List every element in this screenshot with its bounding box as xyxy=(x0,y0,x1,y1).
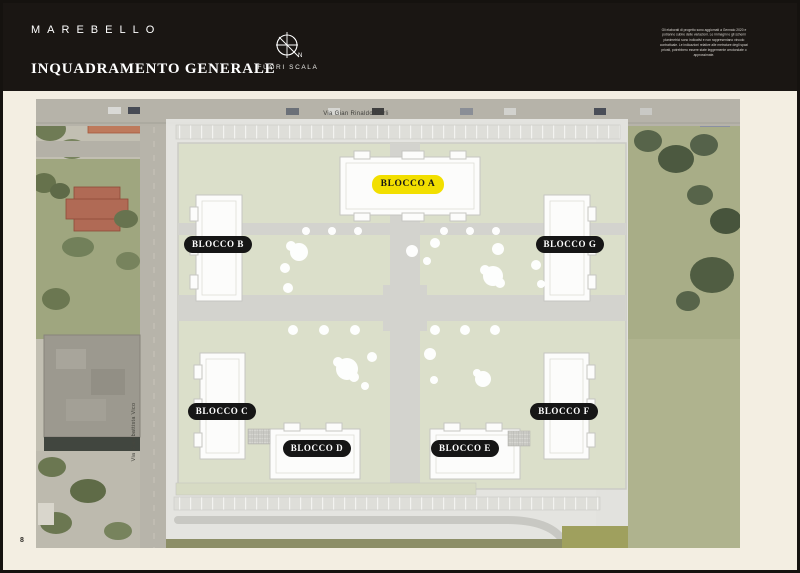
disclaimer-text: Gli elaborati di progetto sono aggiornat… xyxy=(655,28,753,59)
parking-strip-top xyxy=(176,125,620,139)
disclaimer-block: Gli elaborati di progetto sono aggiornat… xyxy=(655,28,753,84)
service-box-e xyxy=(508,431,530,446)
page-number: 8 xyxy=(20,537,24,544)
compass-block: N FUORI SCALA xyxy=(255,31,321,71)
block-label-e: BLOCCO E xyxy=(431,440,499,457)
street-label-via-gian-rinaldo-carli: Via Gian Rinaldo Carli xyxy=(286,111,426,117)
street-label-via-giambattista-vico: Via Giambattista Vico xyxy=(131,403,137,462)
block-label-f: BLOCCO F xyxy=(530,403,598,420)
block-label-b: BLOCCO B xyxy=(184,236,252,253)
compass-north-label: N xyxy=(298,53,302,59)
block-label-c: BLOCCO C xyxy=(188,403,256,420)
brand-logo: MAREBELLO xyxy=(31,24,161,36)
scale-note: FUORI SCALA xyxy=(255,64,321,71)
block-label-d: BLOCCO D xyxy=(283,440,351,457)
aerial-photo-left xyxy=(36,99,168,548)
site-map: Via Gian Rinaldo Carli Via Giambattista … xyxy=(36,99,740,548)
service-box-d xyxy=(248,429,270,444)
page-title: INQUADRAMENTO GENERALE xyxy=(31,61,275,78)
block-label-g: BLOCCO G xyxy=(536,236,604,253)
page-header: MAREBELLO INQUADRAMENTO GENERALE N FUORI… xyxy=(3,3,797,91)
aerial-photo-right xyxy=(628,99,740,548)
block-label-a: BLOCCO A xyxy=(372,175,444,194)
brochure-page: MAREBELLO INQUADRAMENTO GENERALE N FUORI… xyxy=(0,0,800,573)
site-plan-artwork xyxy=(36,99,740,548)
